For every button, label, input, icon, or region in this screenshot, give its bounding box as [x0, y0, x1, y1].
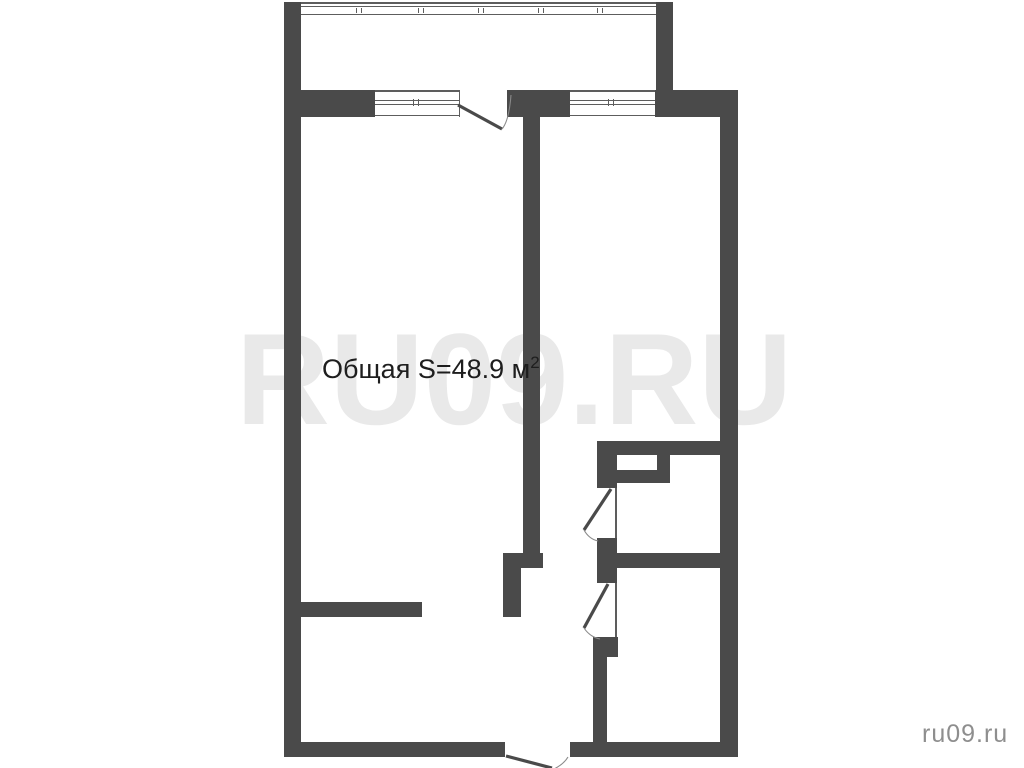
balcony-door-leaf [458, 105, 502, 129]
area-label-sup: 2 [530, 353, 539, 372]
entrance-door-arc [554, 757, 568, 768]
balcony-door-arc [502, 95, 511, 129]
wc2-door-arc [584, 628, 600, 639]
total-area-label: Общая S=48.9 м2 [322, 353, 540, 385]
entrance-door-leaf [506, 756, 552, 768]
floorplan-image: RU09.RU Общая S=48.9 м2 ru09.ru [0, 0, 1024, 768]
wc1-door-arc [584, 530, 598, 541]
wc1-door-leaf [584, 489, 611, 530]
wc2-door-leaf [584, 584, 608, 628]
site-brand-text: ru09.ru [922, 720, 1008, 749]
area-label-text: Общая S=48.9 м [322, 354, 530, 384]
